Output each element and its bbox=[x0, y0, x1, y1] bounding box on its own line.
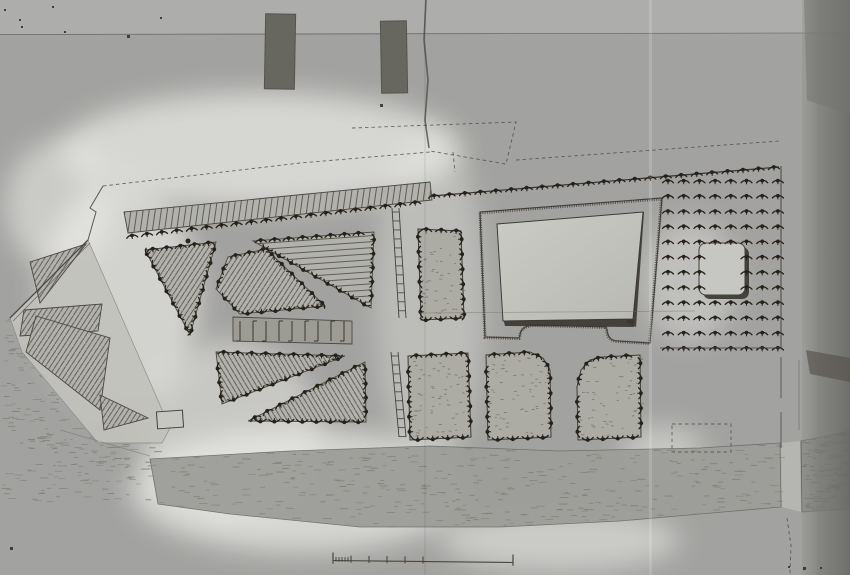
registration-speck bbox=[4, 9, 6, 11]
registration-speck bbox=[64, 31, 66, 33]
photographed-plan bbox=[0, 0, 850, 575]
registration-speck bbox=[127, 35, 130, 38]
registration-speck bbox=[803, 567, 806, 570]
registration-speck bbox=[19, 19, 21, 21]
paddock-upper bbox=[416, 227, 467, 323]
registration-speck bbox=[52, 6, 54, 8]
paddock-b bbox=[484, 350, 553, 442]
paddock-a bbox=[406, 351, 473, 442]
photo-dark-object bbox=[264, 14, 295, 90]
hedge-band bbox=[233, 317, 352, 344]
registration-speck bbox=[380, 104, 383, 107]
small-plot-rect bbox=[156, 410, 183, 429]
registration-speck bbox=[820, 567, 822, 569]
paddock-c bbox=[575, 353, 644, 442]
registration-speck bbox=[10, 547, 13, 550]
photo-dark-object bbox=[380, 21, 407, 93]
fold-crease-light bbox=[649, 0, 652, 575]
orchard-pavilion bbox=[699, 243, 745, 295]
plan-drawing bbox=[0, 0, 850, 575]
registration-speck bbox=[21, 26, 23, 28]
registration-speck bbox=[788, 566, 790, 568]
plan-dot bbox=[186, 239, 191, 244]
garden-parterre bbox=[497, 212, 643, 321]
registration-speck bbox=[160, 17, 162, 19]
